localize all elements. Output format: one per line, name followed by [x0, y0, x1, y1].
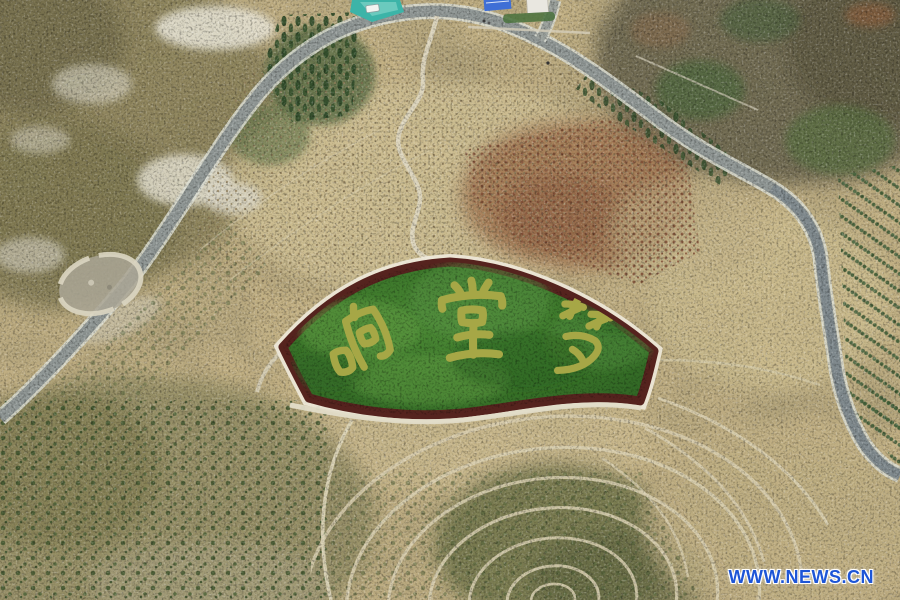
- stroke: [450, 352, 499, 358]
- pedestrian: [483, 20, 486, 23]
- aerial-photo-canvas: [0, 0, 900, 600]
- stroke: [457, 334, 489, 338]
- stroke: [471, 281, 472, 291]
- stroke: [441, 300, 442, 309]
- pedestrian: [488, 22, 491, 25]
- aerial-photo: WWW.NEWS.CN 响堂梦: [0, 0, 900, 600]
- parked-car: [366, 4, 380, 13]
- stroke: [483, 283, 489, 292]
- pedestrian: [546, 61, 549, 64]
- watermark-text: WWW.NEWS.CN: [729, 567, 874, 588]
- stroke: [501, 296, 503, 306]
- white-building: [527, 0, 549, 14]
